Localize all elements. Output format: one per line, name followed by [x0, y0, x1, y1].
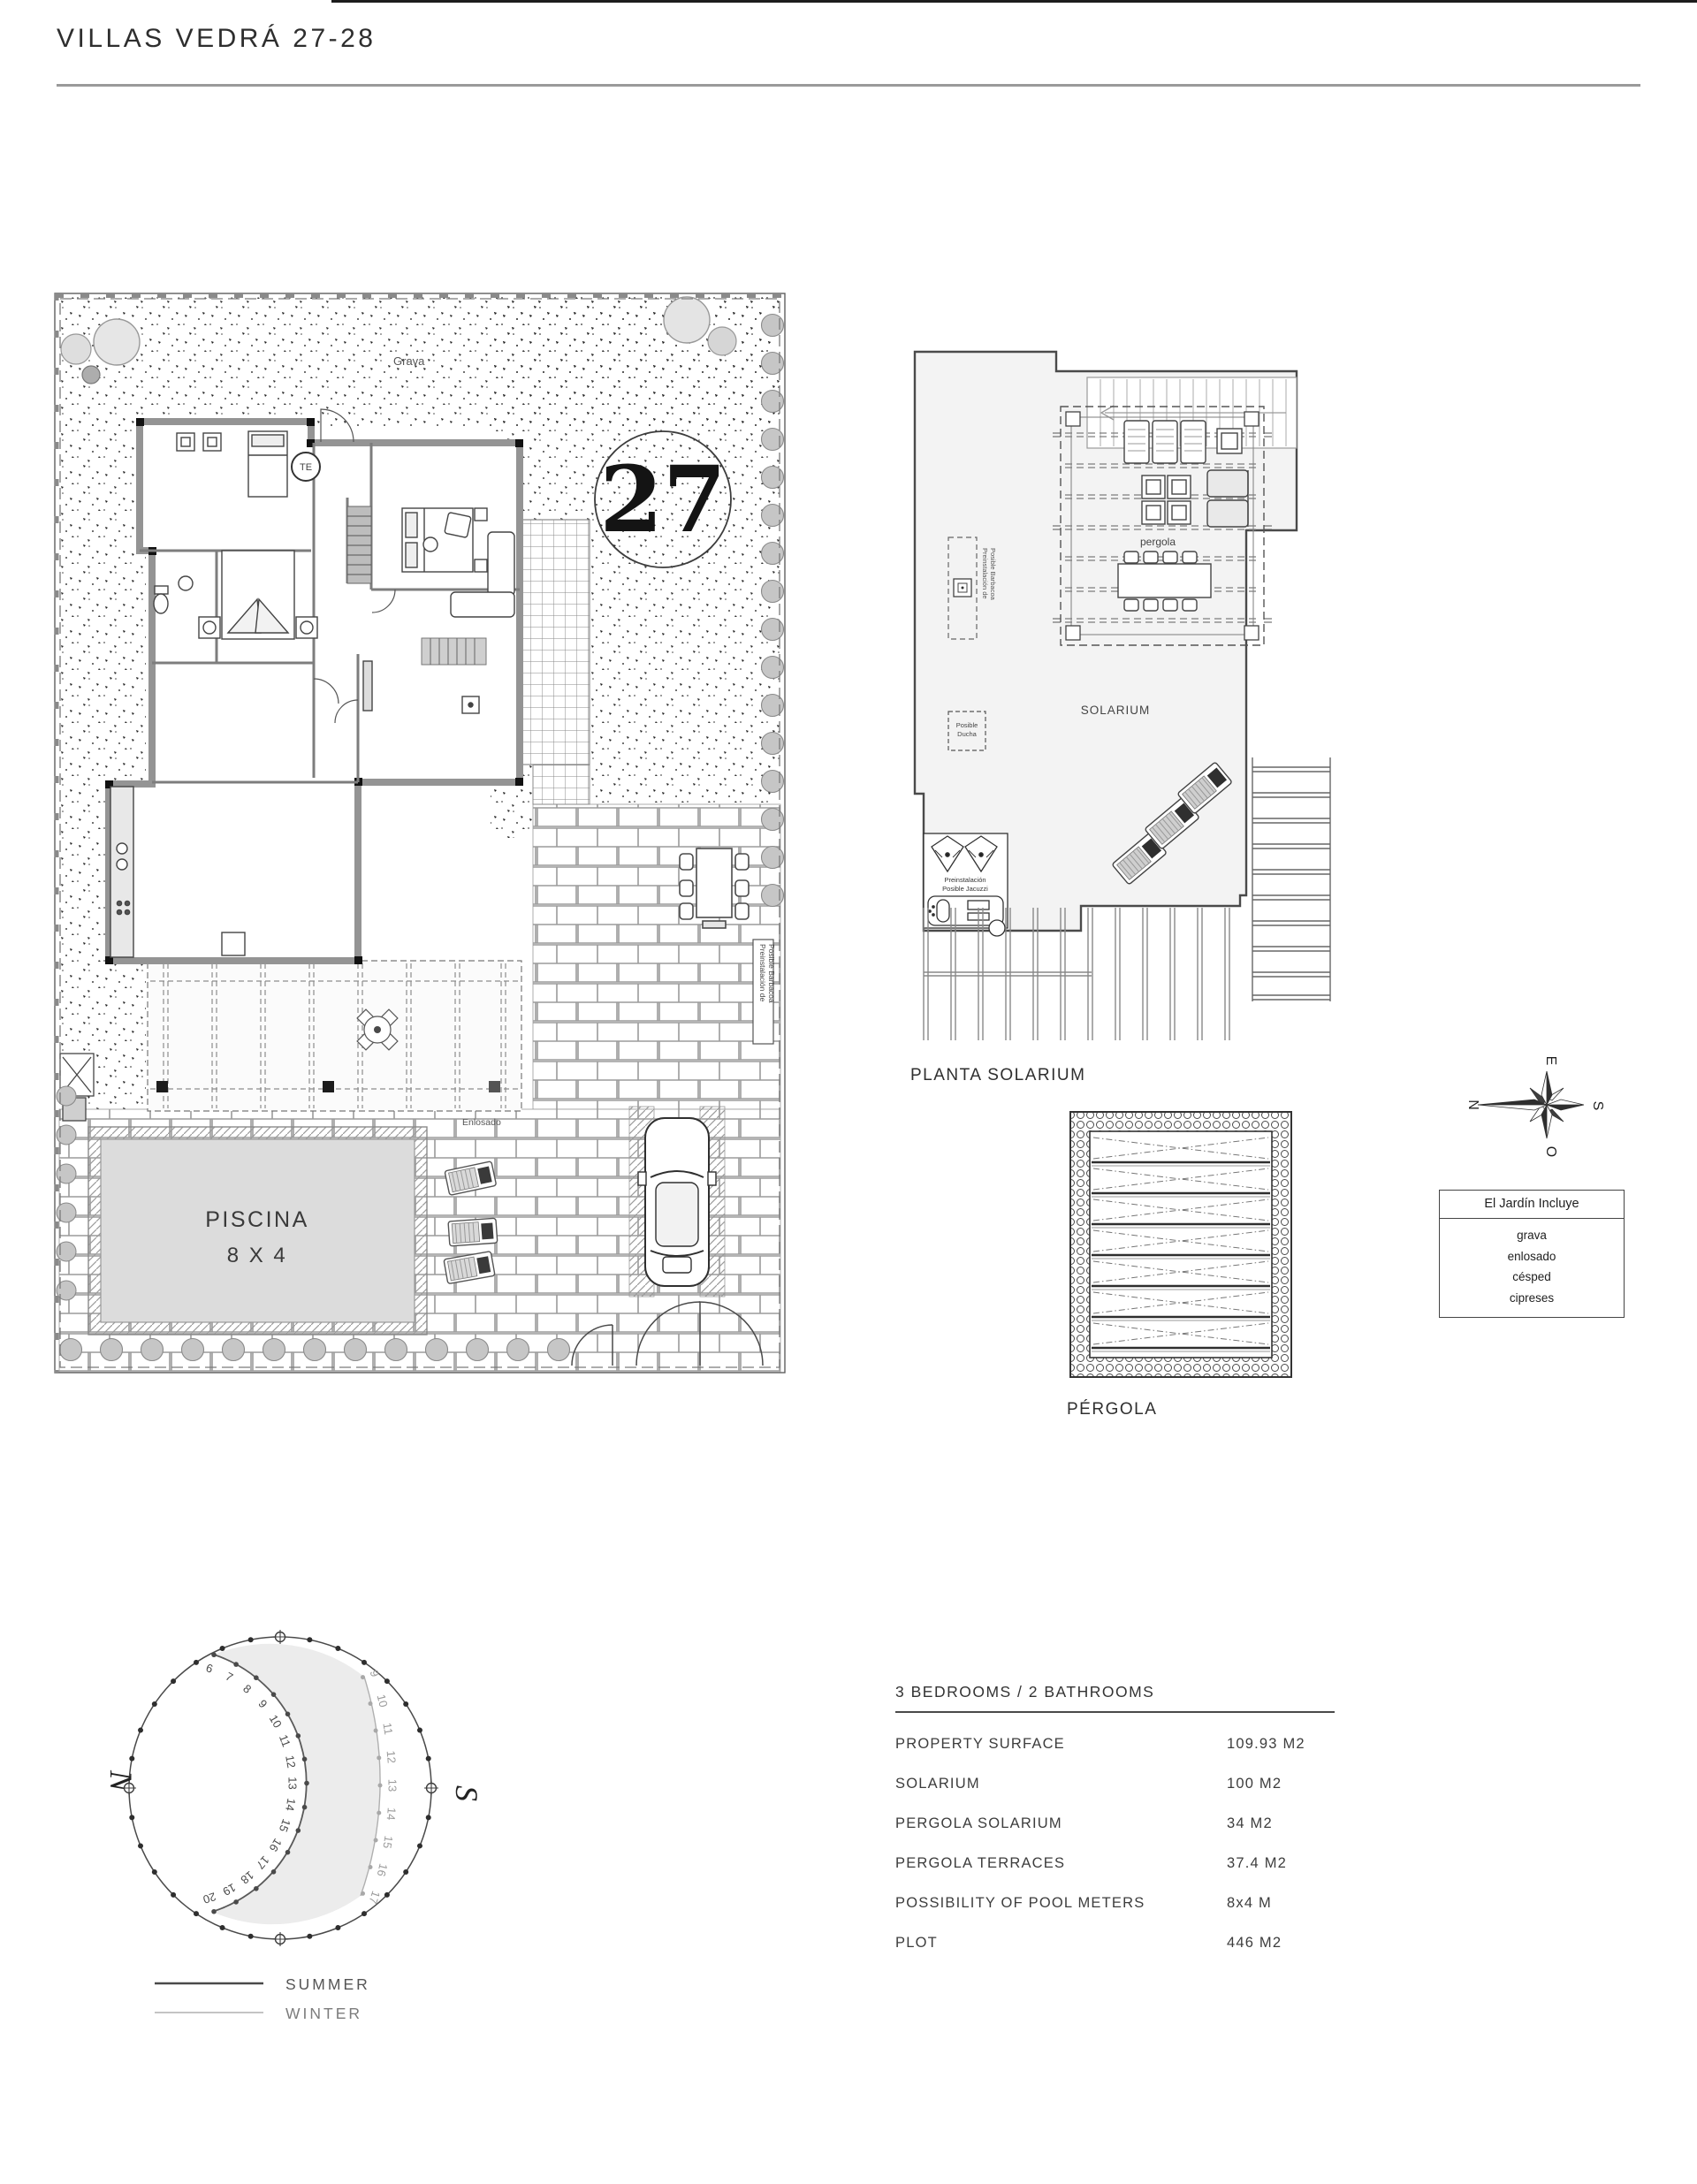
svg-text:Posible Barbacoa: Posible Barbacoa — [989, 548, 997, 601]
scan-artifact-line — [331, 0, 1697, 3]
parking-bay — [629, 1107, 725, 1297]
svg-text:Posible Jacuzzi: Posible Jacuzzi — [942, 885, 988, 893]
garden-item: césped — [1440, 1267, 1624, 1288]
spec-label: PERGOLA SOLARIUM — [895, 1815, 1062, 1831]
te-marker: TE — [292, 453, 320, 481]
spec-label: SOLARIUM — [895, 1776, 980, 1792]
spec-value: 37.4 M2 — [1227, 1844, 1287, 1883]
spec-value: 446 M2 — [1227, 1923, 1282, 1963]
svg-text:11: 11 — [380, 1722, 395, 1736]
svg-text:Ducha: Ducha — [957, 730, 978, 738]
svg-text:11: 11 — [277, 1733, 293, 1749]
svg-text:Posible Barbacoa: Posible Barbacoa — [767, 944, 776, 1003]
sun-south-label: S — [449, 1785, 484, 1801]
svg-text:10: 10 — [267, 1712, 285, 1730]
page-title: VILLAS VEDRÁ 27-28 — [57, 24, 377, 54]
spec-row: POSSIBILITY OF POOL METERS 8x4 M — [895, 1883, 1337, 1923]
svg-text:27: 27 — [599, 446, 726, 553]
interior-stair — [347, 506, 371, 583]
svg-text:20: 20 — [202, 1890, 217, 1906]
spec-divider — [895, 1711, 1335, 1713]
compass-north-label: N — [1465, 1100, 1480, 1110]
garden-item: grava — [1440, 1225, 1624, 1246]
compass-east-label: E — [1543, 1056, 1558, 1066]
solarium-plan: pergola Preinstalación de Posible Barbac… — [884, 345, 1405, 1096]
spec-row: PERGOLA SOLARIUM 34 M2 — [895, 1804, 1337, 1844]
svg-text:6: 6 — [204, 1661, 215, 1676]
svg-text:13: 13 — [386, 1779, 400, 1792]
svg-text:12: 12 — [384, 1750, 399, 1764]
solarium-label: SOLARIUM — [1081, 704, 1151, 717]
pool: PISCINA 8 X 4 — [88, 1127, 427, 1335]
svg-text:14: 14 — [384, 1807, 399, 1821]
svg-text:12: 12 — [283, 1754, 298, 1769]
pergola-plan: PÉRGOLA — [1056, 1100, 1361, 1427]
garden-box-title: El Jardín Incluye — [1440, 1191, 1624, 1219]
outdoor-dining-table — [680, 848, 749, 928]
garden-includes-box: El Jardín Incluye grava enlosado césped … — [1439, 1190, 1625, 1318]
spec-label: POSSIBILITY OF POOL METERS — [895, 1895, 1145, 1911]
grava-label: Grava — [393, 354, 425, 368]
spec-label: PLOT — [895, 1935, 938, 1951]
right-trellis — [1252, 757, 1330, 1001]
pool-loungers — [444, 1161, 498, 1284]
site-plan: PISCINA 8 X 4 — [49, 283, 795, 1383]
pergola-dining-table — [1118, 552, 1211, 611]
spec-row: PROPERTY SURFACE 109.93 M2 — [895, 1724, 1337, 1764]
svg-text:9: 9 — [368, 1668, 383, 1678]
compass-south-label: S — [1590, 1101, 1605, 1111]
svg-text:14: 14 — [283, 1797, 298, 1812]
svg-text:Preinstalación de: Preinstalación de — [758, 944, 767, 1001]
svg-text:17: 17 — [366, 1890, 383, 1906]
svg-text:TE: TE — [300, 462, 312, 473]
pergola-label: pergola — [1140, 536, 1176, 548]
barbacoa-box: Preinstalación de Posible Barbacoa — [753, 940, 776, 1044]
pergola-terrace — [148, 961, 521, 1111]
svg-text:13: 13 — [286, 1777, 300, 1789]
spec-label: PERGOLA TERRACES — [895, 1855, 1065, 1871]
legend-summer: SUMMER — [285, 1975, 370, 1993]
spec-value: 8x4 M — [1227, 1883, 1272, 1923]
enlosado-label: Enlosado — [462, 1117, 501, 1128]
svg-text:16: 16 — [267, 1836, 285, 1853]
svg-text:Preinstalación: Preinstalación — [944, 876, 985, 884]
svg-text:8: 8 — [240, 1682, 254, 1696]
pool-label: PISCINA — [205, 1207, 309, 1232]
compass-west-label: O — [1543, 1146, 1558, 1157]
title-divider — [57, 84, 1640, 87]
planta-solarium-title: PLANTA SOLARIUM — [910, 1066, 1085, 1084]
pergola-plan-title: PÉRGOLA — [1067, 1400, 1157, 1419]
terrace-step — [422, 638, 486, 665]
svg-text:7: 7 — [224, 1670, 236, 1685]
sun-legend: SUMMER WINTER — [155, 1975, 370, 2022]
garden-item: enlosado — [1440, 1246, 1624, 1267]
sun-path-diagram: N S SUMMER WINTER 6789101112131415161718… — [71, 1626, 526, 2042]
svg-text:15: 15 — [380, 1835, 395, 1850]
spec-label: PROPERTY SURFACE — [895, 1736, 1065, 1752]
svg-text:9: 9 — [255, 1697, 270, 1710]
spec-value: 100 M2 — [1227, 1764, 1282, 1804]
compass-star — [1478, 1071, 1584, 1138]
legend-winter: WINTER — [285, 2005, 362, 2022]
unit-number-badge: 27 — [595, 431, 731, 567]
pergola-loungers — [1124, 421, 1206, 463]
svg-text:16: 16 — [375, 1862, 391, 1878]
svg-text:10: 10 — [375, 1693, 391, 1708]
spec-value: 109.93 M2 — [1227, 1724, 1305, 1764]
spec-row: SOLARIUM 100 M2 — [895, 1764, 1337, 1804]
svg-text:15: 15 — [277, 1817, 293, 1834]
svg-text:17: 17 — [254, 1853, 272, 1872]
spec-row: PERGOLA TERRACES 37.4 M2 — [895, 1844, 1337, 1883]
jacuzzi: Preinstalación Posible Jacuzzi — [924, 833, 1008, 936]
spec-value: 34 M2 — [1227, 1804, 1273, 1844]
car — [638, 1118, 716, 1286]
pool-size-label: 8 X 4 — [227, 1244, 288, 1267]
spec-row: PLOT 446 M2 — [895, 1923, 1337, 1963]
svg-text:19: 19 — [221, 1881, 239, 1899]
brochure-page: VILLAS VEDRÁ 27-28 — [0, 0, 1697, 2184]
spec-title: 3 BEDROOMS / 2 BATHROOMS — [895, 1683, 1337, 1701]
pergola-side-table — [1217, 429, 1242, 453]
svg-text:Preinstalación de: Preinstalación de — [981, 548, 989, 599]
spec-table: 3 BEDROOMS / 2 BATHROOMS PROPERTY SURFAC… — [895, 1683, 1337, 1963]
garden-item: cipreses — [1440, 1288, 1624, 1309]
svg-text:Posible: Posible — [956, 721, 978, 729]
bed-1 — [248, 431, 287, 497]
svg-text:18: 18 — [238, 1868, 256, 1887]
compass-rose: N E S O — [1458, 1025, 1644, 1202]
